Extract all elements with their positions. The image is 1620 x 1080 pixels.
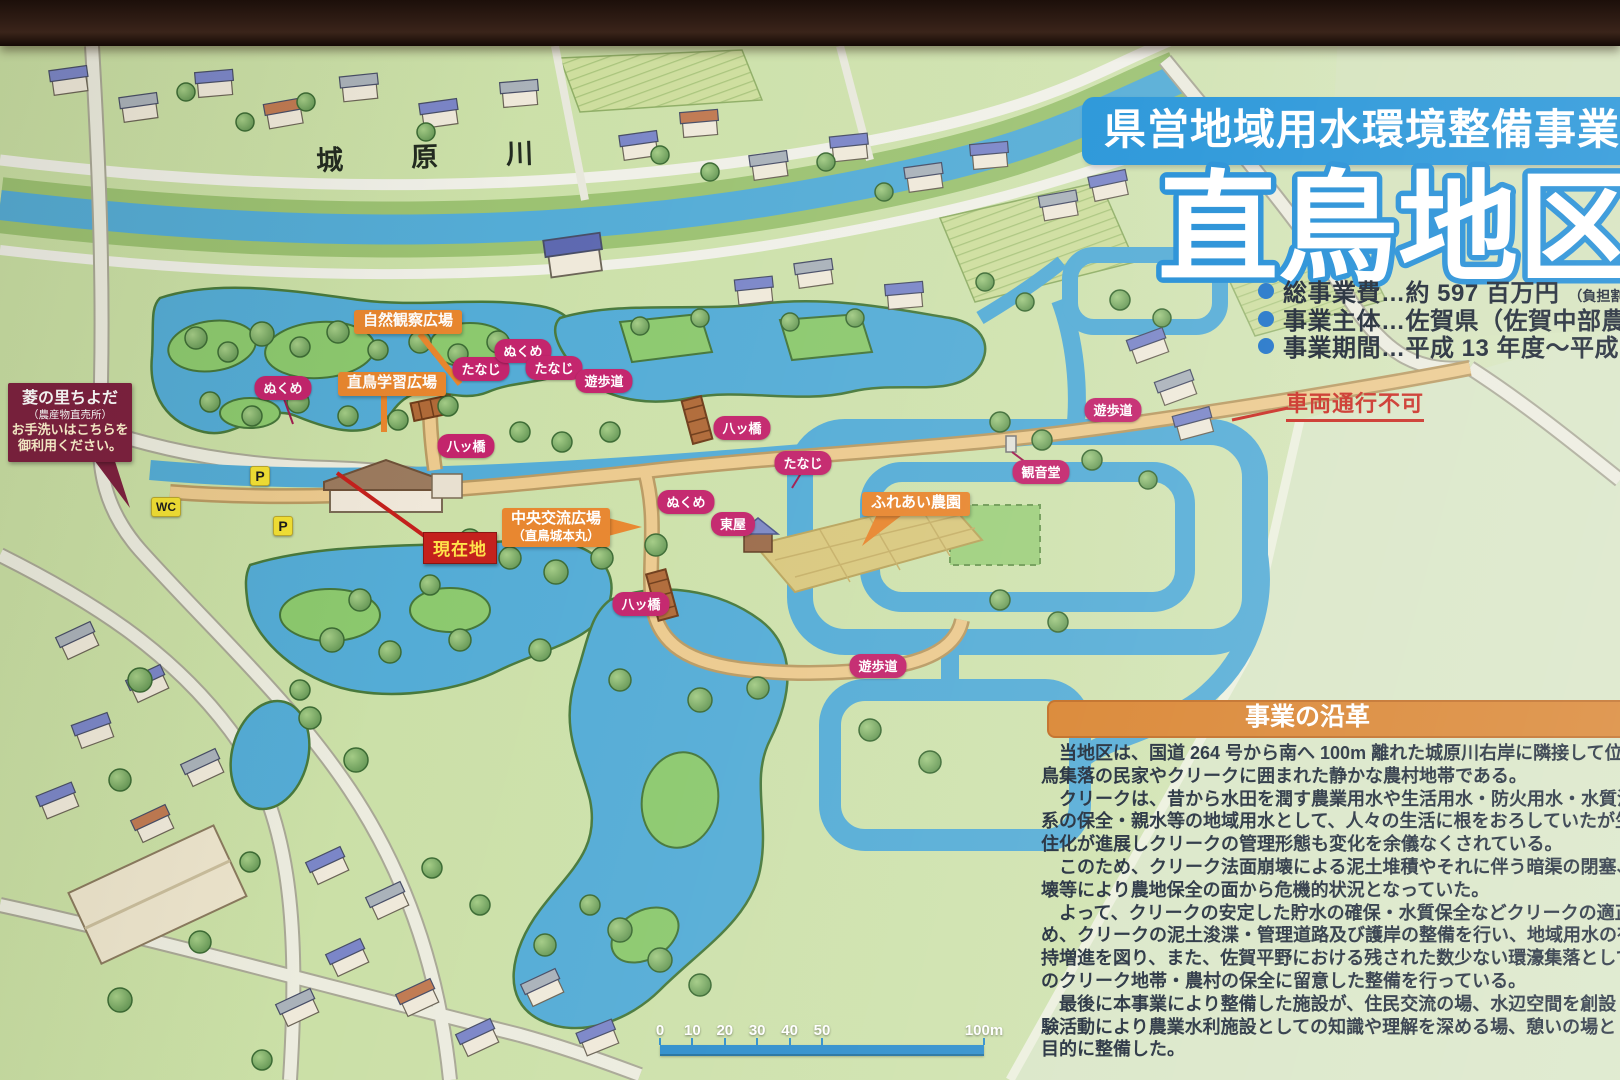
callout-central-plaza: 中央交流広場 （直鳥城本丸） xyxy=(502,508,610,547)
map-label-pill: たなじ xyxy=(774,451,831,475)
history-line: 鳥集落の民家やクリークに囲まれた静かな農村地帯である。 xyxy=(1041,765,1620,788)
callout-learning-plaza: 直鳥学習広場 xyxy=(338,372,446,396)
history-header: 事業の沿革 xyxy=(1047,700,1620,738)
farm-shop-name: 菱の里ちよだ xyxy=(10,389,130,409)
scale-tick xyxy=(691,1038,693,1045)
history-line: 系の保全・親水等の地域用水として、人々の生活に根をおろしていたが生活様式の多様化 xyxy=(1041,810,1620,833)
map-label-pill: 八ッ橋 xyxy=(612,592,669,616)
map-label-pill: 八ッ橋 xyxy=(713,416,770,440)
history-line: クリークは、昔から水田を潤す農業用水や生活用水・防火用水・水質浄化用水・景観や xyxy=(1041,788,1620,811)
history-title: 事業の沿革 xyxy=(1049,702,1620,733)
callout-central-plaza-title: 中央交流広場 xyxy=(511,510,601,527)
bullet-icon xyxy=(1258,283,1274,299)
history-line: このため、クリーク法面崩壊による泥土堆積やそれに伴う暗渠の閉塞、さらに水田の法 xyxy=(1041,856,1620,879)
history-line: め、クリークの泥土浚渫・管理道路及び護岸の整備を行い、地域用水の有する多面的機能 xyxy=(1041,924,1620,947)
scale-tick-label: 40 xyxy=(781,1022,798,1039)
history-line: 壊等により農地保全の面から危機的状況となっていた。 xyxy=(1041,879,1620,902)
map-label-pill: 遊歩道 xyxy=(849,654,906,678)
map-label-pill: ぬくめ xyxy=(657,490,714,514)
scale-tick xyxy=(659,1038,661,1045)
history-line: 最後に本事業により整備した施設が、住民交流の場、水辺空間を創設しクリークを通し xyxy=(1041,993,1620,1016)
scale-tick xyxy=(789,1038,791,1045)
map-label-pill: 東屋 xyxy=(711,512,755,536)
callout-central-plaza-sub: （直鳥城本丸） xyxy=(511,529,601,545)
scale-tick xyxy=(821,1038,823,1045)
history-line: 験活動により農業水利施設としての知識や理解を深める場、憩いの場として活用されるこ xyxy=(1041,1016,1620,1039)
scale-tick-label: 30 xyxy=(749,1022,766,1039)
bullet-icon xyxy=(1258,311,1274,327)
map-label-pill: ぬくめ xyxy=(254,376,311,400)
scale-tick-label: 20 xyxy=(716,1022,733,1039)
history-paragraphs: 当地区は、国道 264 号から南へ 100m 離れた城原川右岸に隣接して位置し、… xyxy=(1041,742,1620,1061)
sign-frame xyxy=(0,0,1620,46)
scale-tick xyxy=(756,1038,758,1045)
map-label-pill: 遊歩道 xyxy=(575,369,632,393)
program-banner: 県営地域用水環境整備事業 xyxy=(1082,97,1620,165)
fact-text: 事業期間…平成 13 年度～平成 22 年度 xyxy=(1283,328,1620,363)
toilet-notice-line2: 御利用ください。 xyxy=(10,438,130,454)
history-line: よって、クリークの安定した貯水の確保・水質保全などクリークの適正な保全管理を行 xyxy=(1041,902,1620,925)
scale-end-label: 100m xyxy=(965,1022,1003,1039)
toilet-badge: WC xyxy=(151,497,181,517)
history-line: のクリーク地帯・農村の保全に留意した整備を行っている。 xyxy=(1041,970,1620,993)
map-scale-bar: 01020304050100m xyxy=(650,1022,995,1066)
callout-nature-plaza: 自然観察広場 xyxy=(354,310,462,334)
scale-tick-label: 0 xyxy=(656,1022,664,1039)
scale-tick-label: 50 xyxy=(814,1022,831,1039)
toilet-notice-line1: お手洗いはこちらを xyxy=(10,422,130,438)
scale-tick-label: 10 xyxy=(684,1022,701,1039)
signboard-photo: 城原川 菱の里ちよだ （農産物直売所） お手洗いはこちらを 御利用ください。 W… xyxy=(0,0,1620,1080)
bullet-icon xyxy=(1258,338,1274,354)
scale-tick xyxy=(983,1038,985,1045)
scale-tick xyxy=(724,1038,726,1045)
program-title: 県営地域用水環境整備事業 xyxy=(1082,97,1620,163)
current-location-marker: 現在地 xyxy=(423,532,497,564)
map-label-pill: 観音堂 xyxy=(1012,460,1069,484)
scale-bar-line xyxy=(660,1045,984,1056)
farm-shop-subtitle: （農産物直売所） xyxy=(10,409,130,422)
kannon-shrine xyxy=(1006,436,1016,452)
parking-badge: P xyxy=(273,516,293,536)
parking-badge: P xyxy=(250,466,270,486)
map-label-pill: たなじ xyxy=(525,356,582,380)
map-label-pill: 遊歩道 xyxy=(1084,398,1141,422)
no-vehicle-notice: 車両通行不可 xyxy=(1286,386,1424,422)
map-label-pill: 八ッ橋 xyxy=(437,434,494,458)
history-line: 住化が進展しクリークの管理形態も変化を余儀なくされている。 xyxy=(1041,833,1620,856)
farm-shop-callout: 菱の里ちよだ （農産物直売所） お手洗いはこちらを 御利用ください。 xyxy=(8,383,132,462)
history-line: 目的に整備した。 xyxy=(1041,1038,1620,1061)
history-line: 当地区は、国道 264 号から南へ 100m 離れた城原川右岸に隣接して位置し、… xyxy=(1041,742,1620,765)
callout-fureai-farm: ふれあい農園 xyxy=(862,492,970,516)
history-line: 持増進を図り、また、佐賀平野における残された数少ない環濠集落として昭和 30 年… xyxy=(1041,947,1620,970)
fact-period: 事業期間…平成 13 年度～平成 22 年度 xyxy=(1258,328,1620,363)
